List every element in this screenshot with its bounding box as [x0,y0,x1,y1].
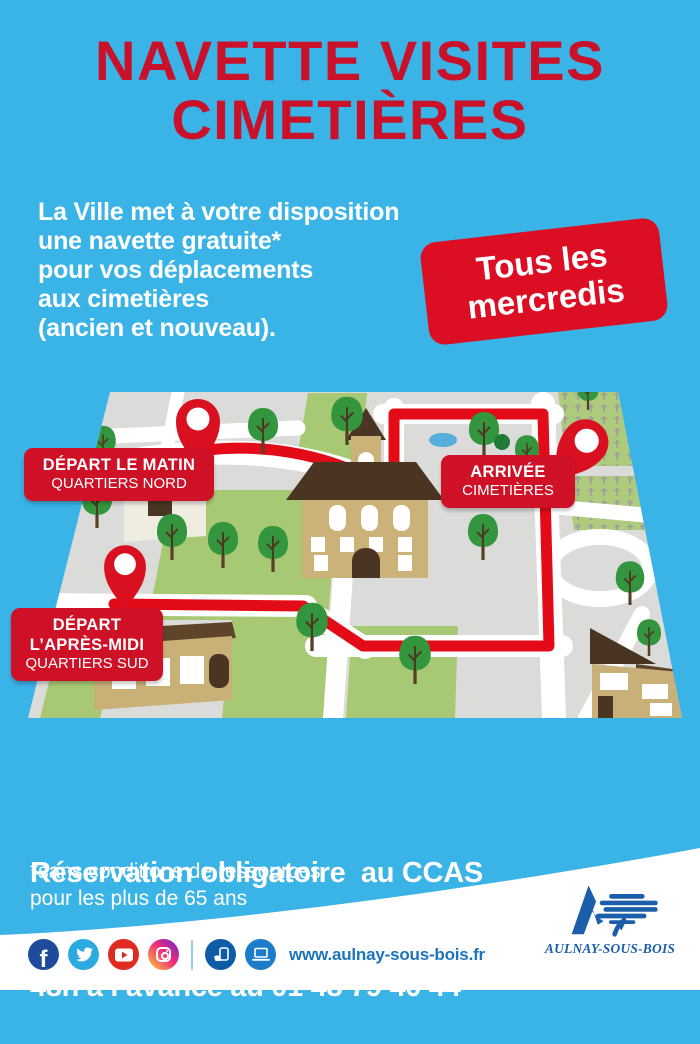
every-wednesday-badge: Tous les mercredis [419,217,669,346]
label-depart-matin-subtitle: QUARTIERS NORD [30,475,208,494]
label-arrivee: ARRIVÉE CIMETIÈRES [441,455,575,508]
footer-links: f www.aulnay-sous-bois.fr [28,939,485,970]
laptop-glyph [252,947,270,962]
aulnay-logo-icon [545,880,675,938]
intro-line: pour vos déplacements [38,256,399,285]
intro-line: La Ville met à votre disposition [38,198,399,227]
label-arrivee-title: ARRIVÉE [447,462,569,482]
label-depart-apres-midi-title1: DÉPART [17,615,157,635]
label-depart-matin: DÉPART LE MATIN QUARTIERS NORD [24,448,214,501]
bush [494,434,510,450]
city-logo-text: AULNAY-SOUS-BOIS [534,941,686,957]
hand-phone-glyph [212,946,230,964]
label-arrivee-subtitle: CIMETIÈRES [447,482,569,501]
facebook-icon[interactable]: f [28,939,59,970]
youtube-icon[interactable] [108,939,139,970]
label-depart-apres-midi: DÉPART L’APRÈS-MIDI QUARTIERS SUD [11,608,163,681]
website-link[interactable]: www.aulnay-sous-bois.fr [289,945,485,965]
intro-line: aux cimetières [38,285,399,314]
pond [429,433,457,447]
city-logo: AULNAY-SOUS-BOIS [534,880,686,957]
poster-title-line2: CIMETIÈRES [0,91,700,150]
website-icon[interactable] [245,939,276,970]
city-map-illustration [0,378,700,740]
intro-line: une navette gratuite* [38,227,399,256]
label-depart-apres-midi-title2: L’APRÈS-MIDI [17,635,157,655]
intro-line: (ancien et nouveau). [38,314,399,343]
twitter-icon[interactable] [68,939,99,970]
instagram-icon[interactable] [148,939,179,970]
label-depart-apres-midi-subtitle: QUARTIERS SUD [17,655,157,674]
intro-text: La Ville met à votre disposition une nav… [38,198,399,343]
mobile-app-icon[interactable] [205,939,236,970]
twitter-bird-glyph [75,947,93,963]
poster-title: NAVETTE VISITES CIMETIÈRES [0,32,700,150]
poster-title-line1: NAVETTE VISITES [0,32,700,91]
divider [191,940,193,970]
label-depart-matin-title: DÉPART LE MATIN [30,455,208,475]
youtube-play-glyph [115,948,133,962]
